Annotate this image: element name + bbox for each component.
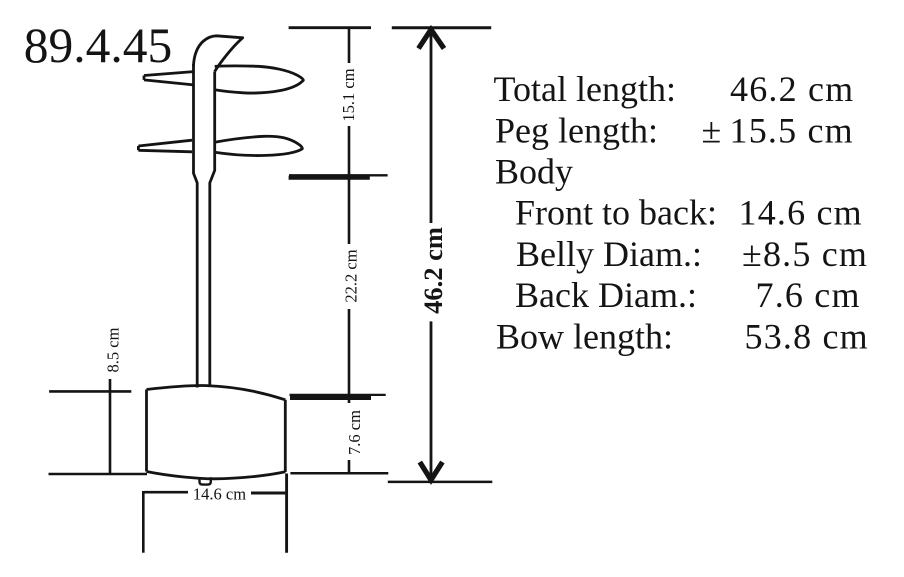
svg-text:8.5 cm: 8.5 cm — [104, 327, 123, 372]
svg-text:Back Diam.:: Back Diam.: — [515, 275, 697, 315]
svg-text:Total length:: Total length: — [494, 69, 676, 109]
svg-text:89.4.45: 89.4.45 — [24, 18, 173, 73]
svg-text:14.6 cm: 14.6 cm — [739, 193, 863, 233]
svg-text:15.5 cm: 15.5 cm — [730, 110, 854, 150]
svg-text:22.2 cm: 22.2 cm — [341, 249, 360, 302]
svg-text:Bow length:: Bow length: — [496, 316, 673, 356]
svg-text:53.8 cm: 53.8 cm — [745, 316, 869, 356]
svg-text:14.6 cm: 14.6 cm — [193, 485, 246, 504]
svg-text:15.1 cm: 15.1 cm — [339, 68, 358, 121]
svg-text:7.6 cm: 7.6 cm — [756, 275, 861, 315]
svg-text:Belly Diam.:: Belly Diam.: — [516, 234, 702, 274]
svg-text:46.2 cm: 46.2 cm — [730, 69, 854, 109]
svg-text:Front to back:: Front to back: — [515, 193, 717, 233]
svg-text:46.2 cm: 46.2 cm — [418, 227, 448, 314]
svg-text:±: ± — [702, 110, 722, 150]
svg-text:7.6 cm: 7.6 cm — [345, 410, 364, 455]
svg-text:±8.5 cm: ±8.5 cm — [742, 234, 868, 274]
svg-text:Body: Body — [495, 152, 573, 192]
svg-text:Peg length:: Peg length: — [495, 110, 658, 150]
